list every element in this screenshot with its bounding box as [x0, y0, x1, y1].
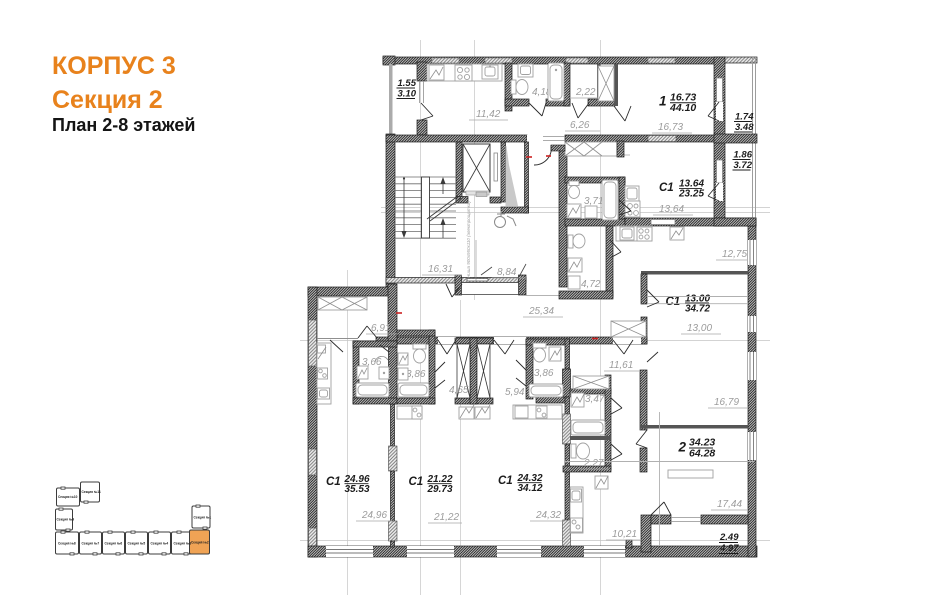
svg-text:11,42: 11,42	[476, 109, 501, 120]
svg-text:6,26: 6,26	[570, 120, 590, 131]
svg-text:16,79: 16,79	[714, 397, 739, 408]
svg-text:2,27: 2,27	[583, 458, 604, 469]
svg-text:12,75: 12,75	[722, 249, 747, 260]
svg-text:21,22: 21,22	[433, 512, 459, 523]
svg-text:16,73: 16,73	[658, 122, 683, 133]
svg-text:Секция №8: Секция №8	[58, 542, 76, 546]
svg-text:24,96: 24,96	[361, 510, 387, 521]
svg-text:6,91: 6,91	[371, 323, 390, 334]
svg-text:Секция №1: Секция №1	[194, 516, 212, 520]
svg-text:4.97: 4.97	[719, 543, 739, 554]
svg-text:С1: С1	[666, 296, 681, 308]
svg-text:3,47: 3,47	[585, 394, 605, 405]
svg-text:34.12: 34.12	[518, 483, 543, 494]
svg-text:Секция №7: Секция №7	[82, 542, 100, 546]
svg-text:Секция №2: Секция №2	[191, 541, 209, 545]
svg-text:3,86: 3,86	[406, 369, 426, 380]
svg-text:35.53: 35.53	[345, 484, 370, 495]
svg-text:Секция №3: Секция №3	[174, 542, 192, 546]
svg-text:11,61: 11,61	[609, 360, 633, 371]
svg-text:64.28: 64.28	[689, 448, 715, 460]
svg-text:Секция 2: Секция 2	[52, 86, 163, 114]
svg-text:10,21: 10,21	[612, 529, 637, 540]
svg-text:2,22: 2,22	[575, 87, 596, 98]
svg-text:Секция №9: Секция №9	[57, 518, 75, 522]
svg-text:2: 2	[678, 439, 687, 454]
svg-text:1: 1	[659, 94, 667, 109]
svg-text:4,65: 4,65	[449, 385, 469, 396]
svg-text:13,64: 13,64	[659, 204, 684, 215]
svg-text:29.73: 29.73	[427, 484, 453, 495]
svg-text:17,44: 17,44	[717, 499, 742, 510]
svg-text:Секция №6: Секция №6	[105, 542, 123, 546]
svg-text:3,71: 3,71	[584, 196, 603, 207]
svg-text:Секция №4: Секция №4	[151, 542, 169, 546]
svg-text:23.25: 23.25	[678, 189, 704, 200]
svg-text:3,86: 3,86	[534, 368, 554, 379]
svg-text:3.48: 3.48	[735, 122, 754, 133]
svg-text:Секция №10: Секция №10	[58, 495, 78, 499]
svg-text:16,31: 16,31	[428, 264, 453, 275]
svg-text:С1: С1	[409, 476, 424, 488]
svg-text:3.72: 3.72	[734, 160, 753, 171]
svg-text:34.72: 34.72	[685, 304, 710, 315]
svg-text:КОРПУС 3: КОРПУС 3	[52, 52, 176, 80]
svg-text:1.55: 1.55	[398, 78, 417, 89]
svg-text:Секция №11: Секция №11	[82, 490, 101, 494]
svg-text:24,32: 24,32	[535, 510, 561, 521]
svg-text:1.86: 1.86	[734, 150, 753, 161]
svg-text:С1: С1	[326, 476, 341, 488]
svg-text:25,34: 25,34	[528, 306, 554, 317]
svg-text:Секция №5: Секция №5	[128, 542, 146, 546]
svg-text:5,94: 5,94	[505, 387, 525, 398]
svg-text:План 2-8 этажей: План 2-8 этажей	[52, 115, 195, 135]
svg-text:44.10: 44.10	[669, 102, 696, 114]
svg-text:3.10: 3.10	[398, 89, 417, 100]
svg-text:С1: С1	[498, 475, 513, 487]
svg-text:1.74: 1.74	[735, 112, 754, 123]
svg-text:С1: С1	[659, 182, 674, 194]
svg-text:2.49: 2.49	[719, 532, 739, 543]
svg-text:4,72: 4,72	[581, 279, 601, 290]
svg-text:13,00: 13,00	[687, 323, 712, 334]
svg-text:8,84: 8,84	[497, 267, 517, 278]
svg-text:Ниша 900х950х110 (электрощитка: Ниша 900х950х110 (электрощитка)	[466, 201, 471, 278]
